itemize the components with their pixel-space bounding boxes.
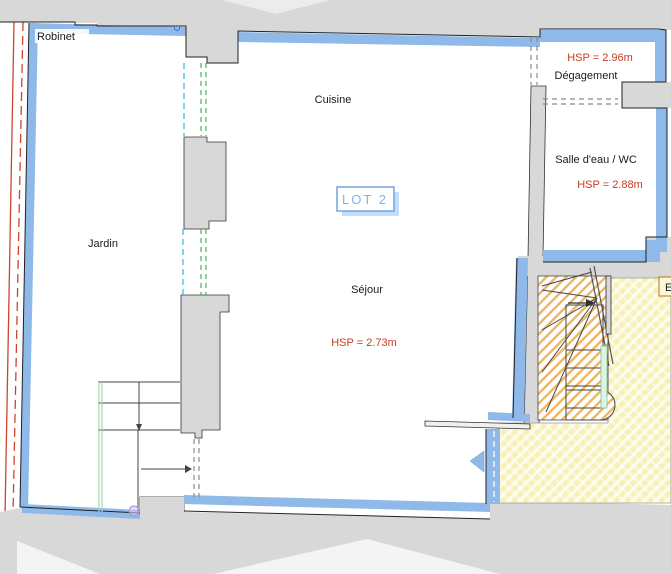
room-label-degagement: Dégagement [555,70,618,82]
wall-degagement-right [655,31,666,82]
ceiling-height-salle-eau: HSP = 2.88m [577,179,643,191]
lot-badge: LOT 2 [337,187,399,216]
ceiling-height-degagement: HSP = 2.96m [567,52,633,64]
ceiling-height-sejour: HSP = 2.73m [331,337,397,349]
wall-center-upper [528,86,546,258]
wall-salle-eau-right [656,108,667,240]
stair-e-badge: E [659,277,671,296]
lot-badge-label: LOT 2 [342,192,388,207]
robinet-label: Robinet [37,31,75,43]
floor-plan-drawing: Robinet Cuisine Jardin Séjour HSP = 2.73… [0,0,671,574]
wall-salle-eau-bottom [543,250,660,262]
outside-right-notch [622,82,671,108]
room-label-salle-eau: Salle d'eau / WC [555,154,637,166]
room-label-jardin: Jardin [88,238,118,250]
wall-sejour-bay [486,429,500,504]
stair-glazing-strip [601,346,607,408]
stair-rounded-end [566,390,615,420]
pillar-left-wall-mid [184,137,226,229]
wall-degagement-top [540,30,666,42]
drain-symbol-icon [129,506,139,516]
stair-wall-stub [606,276,611,334]
winder-staircase [538,266,615,420]
room-label-sejour: Séjour [351,284,383,296]
floor-plan: Robinet Cuisine Jardin Séjour HSP = 2.73… [0,0,671,574]
stair-e-badge-label: E [665,282,671,294]
room-label-cuisine: Cuisine [315,94,352,106]
